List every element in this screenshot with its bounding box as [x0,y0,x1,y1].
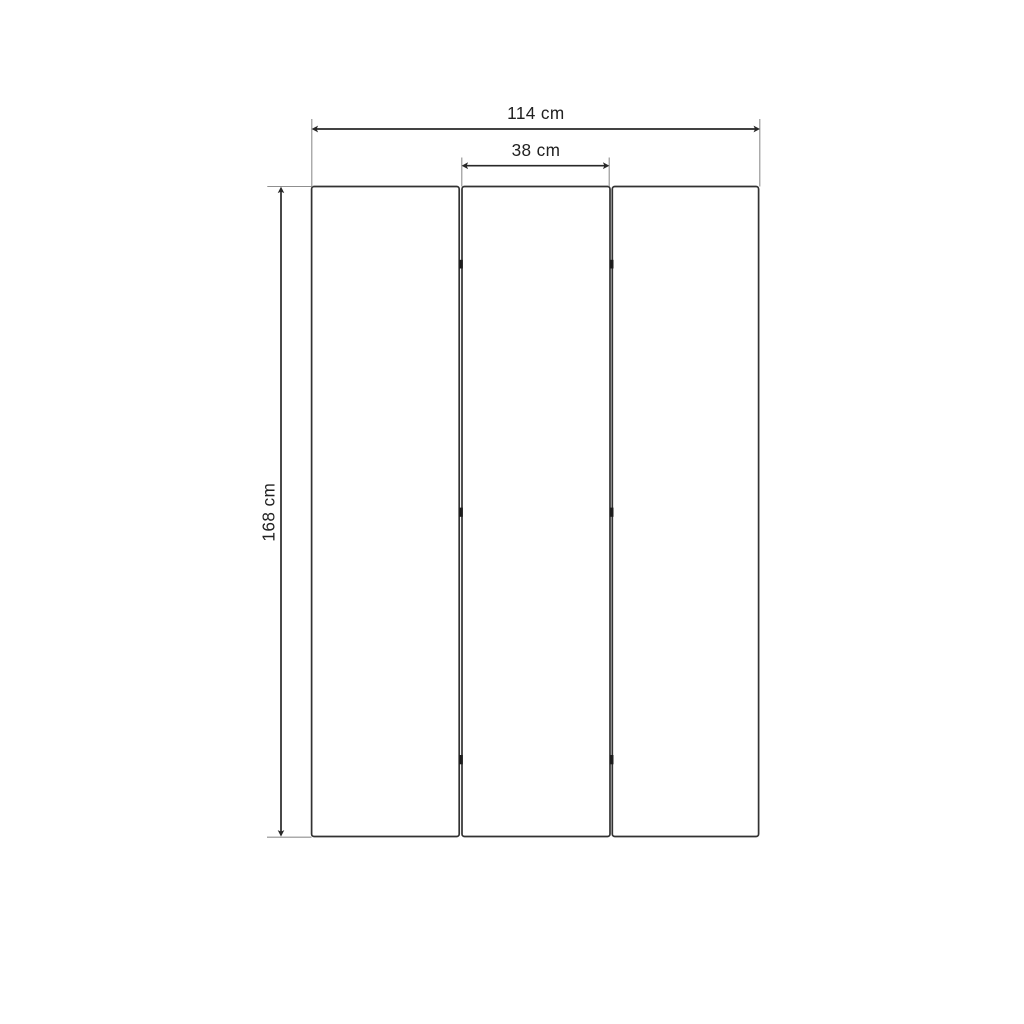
svg-text:38 cm: 38 cm [512,140,561,160]
svg-text:168 cm: 168 cm [258,483,278,542]
svg-text:114 cm: 114 cm [507,103,565,123]
